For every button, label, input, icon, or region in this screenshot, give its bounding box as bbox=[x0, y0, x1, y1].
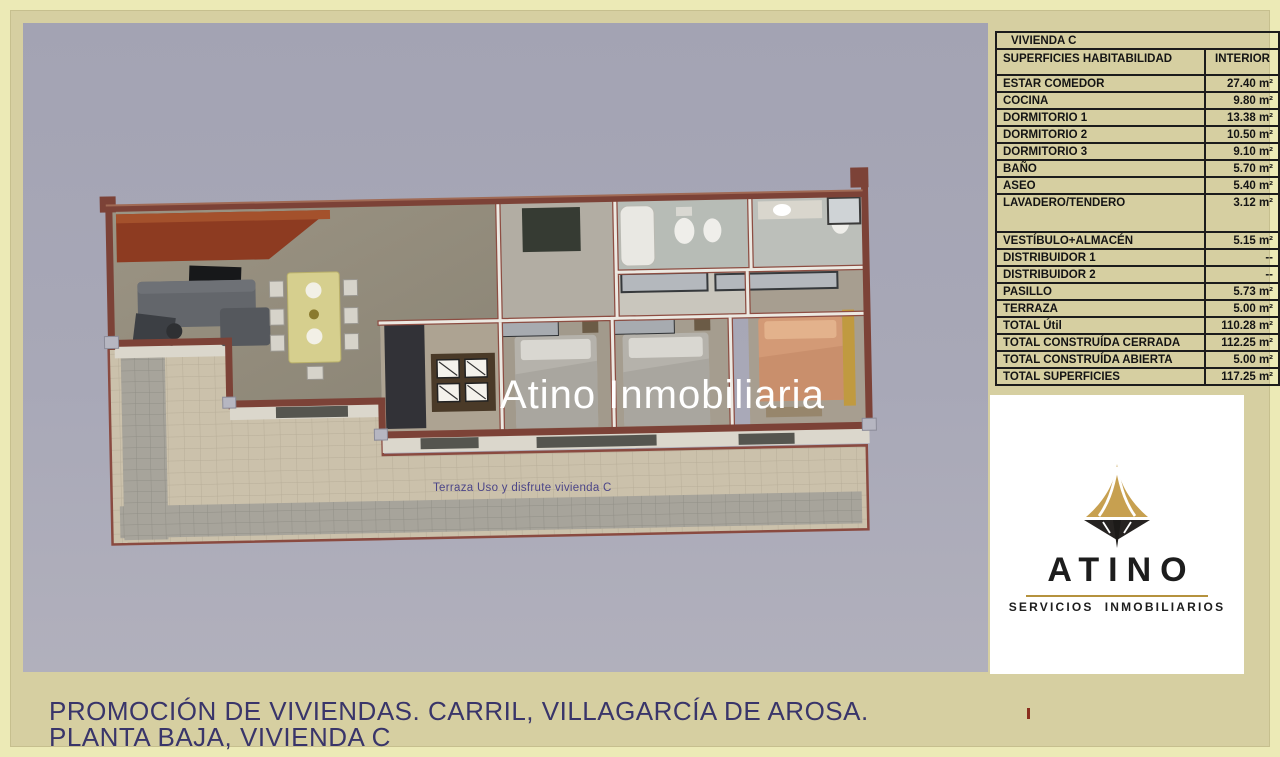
surfaces-table-body: VIVIENDA C SUPERFICIES HABITABILIDAD INT… bbox=[996, 32, 1279, 385]
room-area-value: 5.73 m² bbox=[1205, 283, 1279, 300]
room-label: TERRAZA bbox=[996, 300, 1205, 317]
room-area-value: 112.25 m² bbox=[1205, 334, 1279, 351]
flyer-page: Terraza Uso y disfrute vivienda C Atino … bbox=[0, 0, 1280, 757]
wardrobe bbox=[614, 319, 674, 334]
table-row: ASEO 5.40 m² bbox=[996, 177, 1279, 194]
room-label: BAÑO bbox=[996, 160, 1205, 177]
doormat bbox=[276, 406, 348, 418]
table-row: TOTAL CONSTRUÍDA CERRADA 112.25 m² bbox=[996, 334, 1279, 351]
caption: PROMOCIÓN DE VIVIENDAS. CARRIL, VILLAGAR… bbox=[49, 698, 869, 750]
room-area-value: 13.38 m² bbox=[1205, 109, 1279, 126]
table-row: LAVADERO/TENDERO 3.12 m² bbox=[996, 194, 1279, 232]
room-label: ASEO bbox=[996, 177, 1205, 194]
table-row: TOTAL Útil 110.28 m² bbox=[996, 317, 1279, 334]
room-area-value: 110.28 m² bbox=[1205, 317, 1279, 334]
floor-plan-image bbox=[23, 23, 988, 672]
atino-pyramid-icon bbox=[1079, 461, 1155, 549]
hall-wardrobe bbox=[715, 272, 837, 290]
room-area-value: 9.10 m² bbox=[1205, 143, 1279, 160]
room-label: ESTAR COMEDOR bbox=[996, 75, 1205, 92]
room-label: DORMITORIO 3 bbox=[996, 143, 1205, 160]
room-label: TOTAL Útil bbox=[996, 317, 1205, 334]
room-label: COCINA bbox=[996, 92, 1205, 109]
table-row: TOTAL CONSTRUÍDA ABIERTA 5.00 m² bbox=[996, 351, 1279, 368]
room-area-value: 5.00 m² bbox=[1205, 351, 1279, 368]
wardrobe bbox=[502, 321, 558, 336]
rug bbox=[384, 324, 426, 429]
room-area-value: 3.12 m² bbox=[1205, 194, 1279, 232]
caption-line-2: PLANTA BAJA, VIVIENDA C bbox=[49, 724, 869, 750]
agency-name: ATINO bbox=[1038, 551, 1195, 590]
hall-wardrobe bbox=[621, 272, 707, 292]
room-label: TOTAL CONSTRUÍDA ABIERTA bbox=[996, 351, 1205, 368]
room-label: LAVADERO/TENDERO bbox=[996, 194, 1205, 232]
flyer-content-area: Terraza Uso y disfrute vivienda C Atino … bbox=[10, 10, 1270, 747]
room-label: DORMITORIO 2 bbox=[996, 126, 1205, 143]
room-label: TOTAL CONSTRUÍDA CERRADA bbox=[996, 334, 1205, 351]
room-area-value: 5.00 m² bbox=[1205, 300, 1279, 317]
table-row: DISTRIBUIDOR 2 -- bbox=[996, 266, 1279, 283]
table-row: VESTÍBULO+ALMACÉN 5.15 m² bbox=[996, 232, 1279, 249]
room-area-value: 117.25 m² bbox=[1205, 368, 1279, 385]
room-label: DISTRIBUIDOR 2 bbox=[996, 266, 1205, 283]
room-label: VESTÍBULO+ALMACÉN bbox=[996, 232, 1205, 249]
shower bbox=[828, 197, 861, 224]
table-row: TOTAL SUPERFICIES 117.25 m² bbox=[996, 368, 1279, 385]
agency-subtitle: SERVICIOS INMOBILIARIOS bbox=[1009, 600, 1226, 614]
table-row: TERRAZA 5.00 m² bbox=[996, 300, 1279, 317]
watermark-text: Atino Inmobiliaria bbox=[500, 373, 825, 418]
table-header-value: INTERIOR bbox=[1205, 49, 1279, 75]
bathtub bbox=[620, 206, 655, 267]
room-label: TOTAL SUPERFICIES bbox=[996, 368, 1205, 385]
logo-underline bbox=[1026, 595, 1208, 597]
doormat bbox=[738, 433, 794, 445]
room-area-value: 5.70 m² bbox=[1205, 160, 1279, 177]
room-area-value: 9.80 m² bbox=[1205, 92, 1279, 109]
table-row: COCINA 9.80 m² bbox=[996, 92, 1279, 109]
room-area-value: -- bbox=[1205, 266, 1279, 283]
table-row: DORMITORIO 1 13.38 m² bbox=[996, 109, 1279, 126]
table-row: PASILLO 5.73 m² bbox=[996, 283, 1279, 300]
room-label: DISTRIBUIDOR 1 bbox=[996, 249, 1205, 266]
caption-line-1: PROMOCIÓN DE VIVIENDAS. CARRIL, VILLAGAR… bbox=[49, 698, 869, 724]
table-header-row: SUPERFICIES HABITABILIDAD INTERIOR bbox=[996, 49, 1279, 75]
room-area-value: 5.40 m² bbox=[1205, 177, 1279, 194]
table-row: DISTRIBUIDOR 1 -- bbox=[996, 249, 1279, 266]
table-row: ESTAR COMEDOR 27.40 m² bbox=[996, 75, 1279, 92]
room-area-value: 5.15 m² bbox=[1205, 232, 1279, 249]
doormat bbox=[420, 437, 478, 449]
table-header-label: SUPERFICIES HABITABILIDAD bbox=[996, 49, 1205, 75]
room-label: PASILLO bbox=[996, 283, 1205, 300]
terrace-label: Terraza Uso y disfrute vivienda C bbox=[433, 482, 612, 494]
table-row: DORMITORIO 2 10.50 m² bbox=[996, 126, 1279, 143]
room-area-value: -- bbox=[1205, 249, 1279, 266]
table-title: VIVIENDA C bbox=[996, 32, 1279, 49]
surfaces-table: VIVIENDA C SUPERFICIES HABITABILIDAD INT… bbox=[995, 31, 1280, 386]
red-tick-mark bbox=[1027, 708, 1030, 719]
entry-wardrobe bbox=[522, 207, 581, 252]
room-label: DORMITORIO 1 bbox=[996, 109, 1205, 126]
floor-plan-panel: Terraza Uso y disfrute vivienda C Atino … bbox=[23, 23, 988, 672]
table-title-row: VIVIENDA C bbox=[996, 32, 1279, 49]
table-row: DORMITORIO 3 9.10 m² bbox=[996, 143, 1279, 160]
agency-logo-box: ATINO SERVICIOS INMOBILIARIOS bbox=[990, 395, 1244, 674]
table-row: BAÑO 5.70 m² bbox=[996, 160, 1279, 177]
room-area-value: 27.40 m² bbox=[1205, 75, 1279, 92]
room-area-value: 10.50 m² bbox=[1205, 126, 1279, 143]
